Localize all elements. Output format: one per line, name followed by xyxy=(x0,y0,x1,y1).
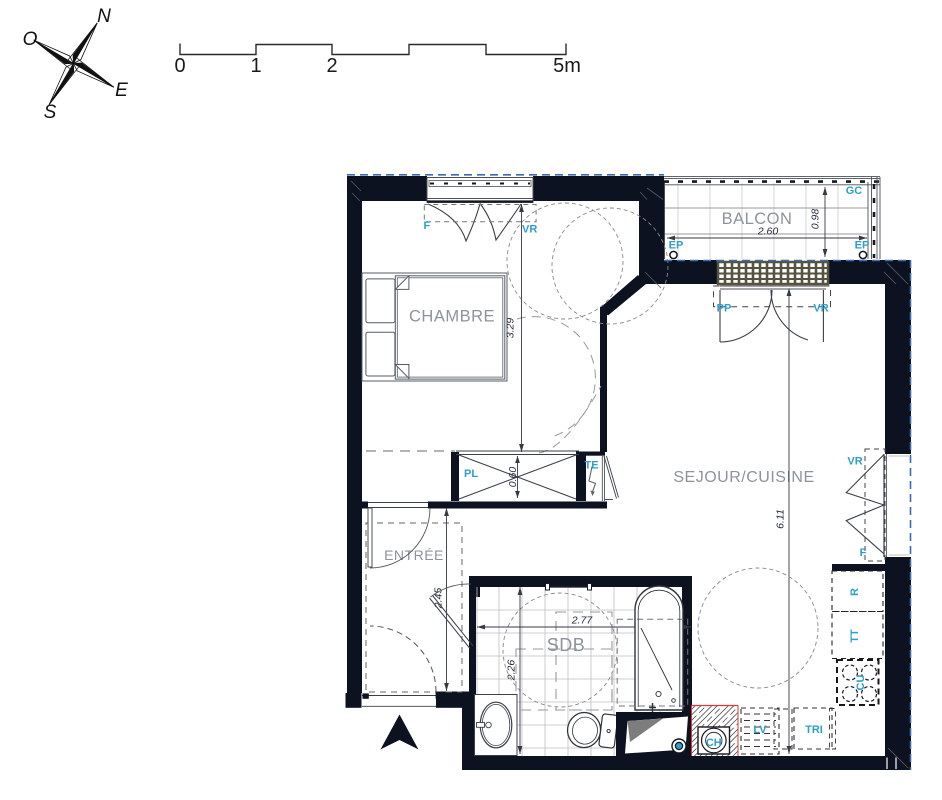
svg-text:TT: TT xyxy=(849,629,861,643)
svg-text:2.60: 2.60 xyxy=(757,226,779,238)
svg-text:PL: PL xyxy=(464,468,478,480)
svg-text:F: F xyxy=(860,547,867,559)
svg-text:N: N xyxy=(97,6,111,27)
svg-text:SDB: SDB xyxy=(547,635,586,655)
svg-text:LV: LV xyxy=(753,724,767,736)
svg-text:F: F xyxy=(424,220,431,232)
svg-text:3.29: 3.29 xyxy=(505,318,517,339)
svg-text:EP: EP xyxy=(855,240,870,252)
svg-text:E: E xyxy=(115,80,128,101)
svg-text:R: R xyxy=(849,588,861,596)
svg-text:VR: VR xyxy=(522,224,537,236)
svg-text:0: 0 xyxy=(174,55,185,77)
svg-text:CU: CU xyxy=(855,675,867,691)
svg-text:S: S xyxy=(44,102,57,123)
svg-text:2: 2 xyxy=(326,55,337,77)
svg-text:0.60: 0.60 xyxy=(507,467,519,488)
svg-text:6.11: 6.11 xyxy=(775,509,787,529)
svg-text:GC: GC xyxy=(846,185,863,197)
svg-text:2.77: 2.77 xyxy=(571,615,594,627)
svg-text:VR: VR xyxy=(813,303,828,315)
svg-text:TRI: TRI xyxy=(805,724,823,736)
svg-text:VR: VR xyxy=(847,456,862,468)
svg-text:CHAMBRE: CHAMBRE xyxy=(409,308,495,326)
svg-text:2.26: 2.26 xyxy=(506,660,518,682)
svg-text:5m: 5m xyxy=(553,55,581,77)
svg-text:0.98: 0.98 xyxy=(810,209,822,230)
svg-text:SEJOUR/CUISINE: SEJOUR/CUISINE xyxy=(673,469,814,486)
svg-text:O: O xyxy=(23,29,38,50)
svg-text:CH: CH xyxy=(706,737,722,749)
svg-text:PP: PP xyxy=(717,303,732,315)
svg-text:EP: EP xyxy=(669,240,684,252)
svg-text:1: 1 xyxy=(250,55,261,77)
